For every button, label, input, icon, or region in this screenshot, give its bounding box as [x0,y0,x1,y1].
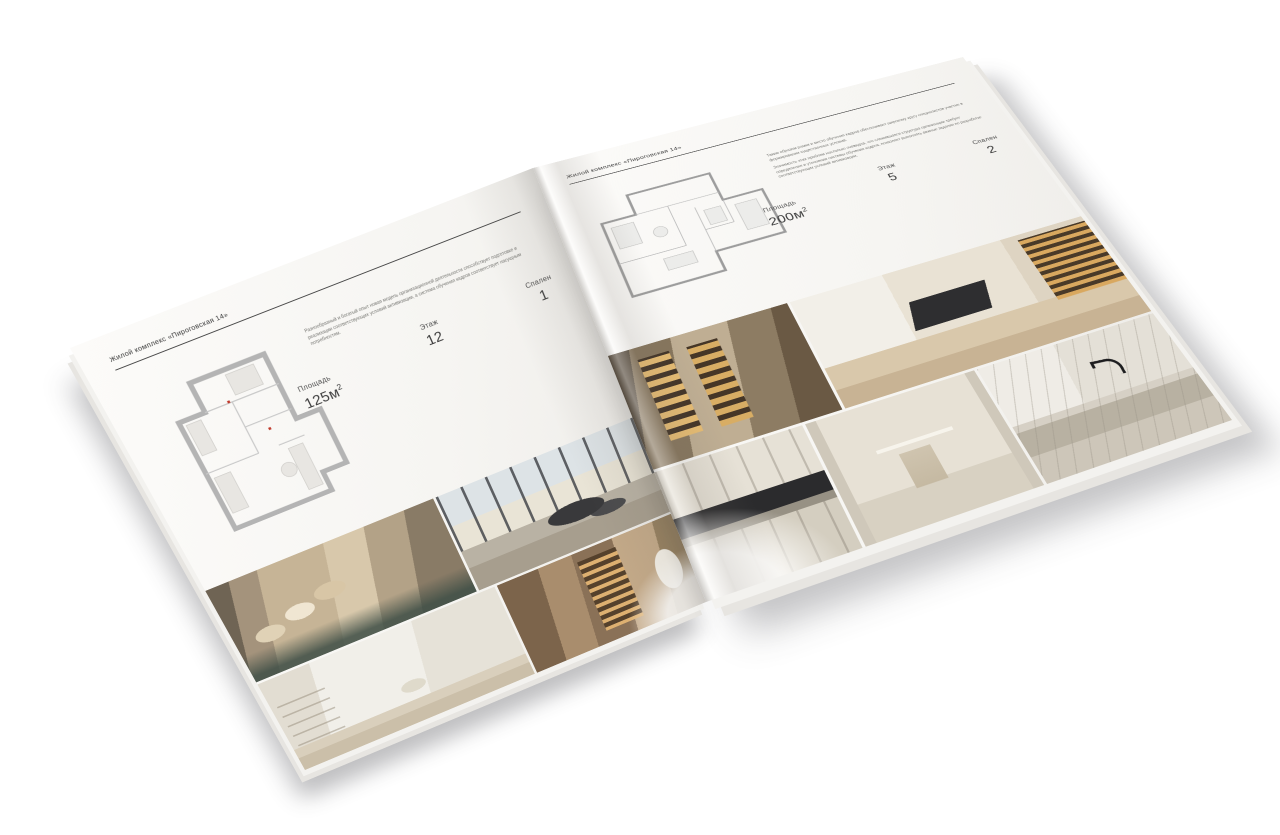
spec-bedrooms: Спален 1 [524,272,560,308]
floor-plan-200 [579,153,809,312]
brochure-mockup-canvas: Жилой комплекс «Пироговская 14» [0,0,1280,835]
spec-bedrooms-value: 2 [976,141,1008,158]
spec-floor-value: 12 [423,328,447,350]
spec-floor: Этаж 12 [418,317,447,349]
spec-floor-value: 5 [881,169,905,185]
faucet-icon [1091,356,1126,379]
spec-floor: Этаж 5 [876,162,905,185]
spec-bedrooms: Спален 2 [971,134,1008,159]
right-info-column: Таким образом рамки и место обучения кад… [763,96,1037,256]
